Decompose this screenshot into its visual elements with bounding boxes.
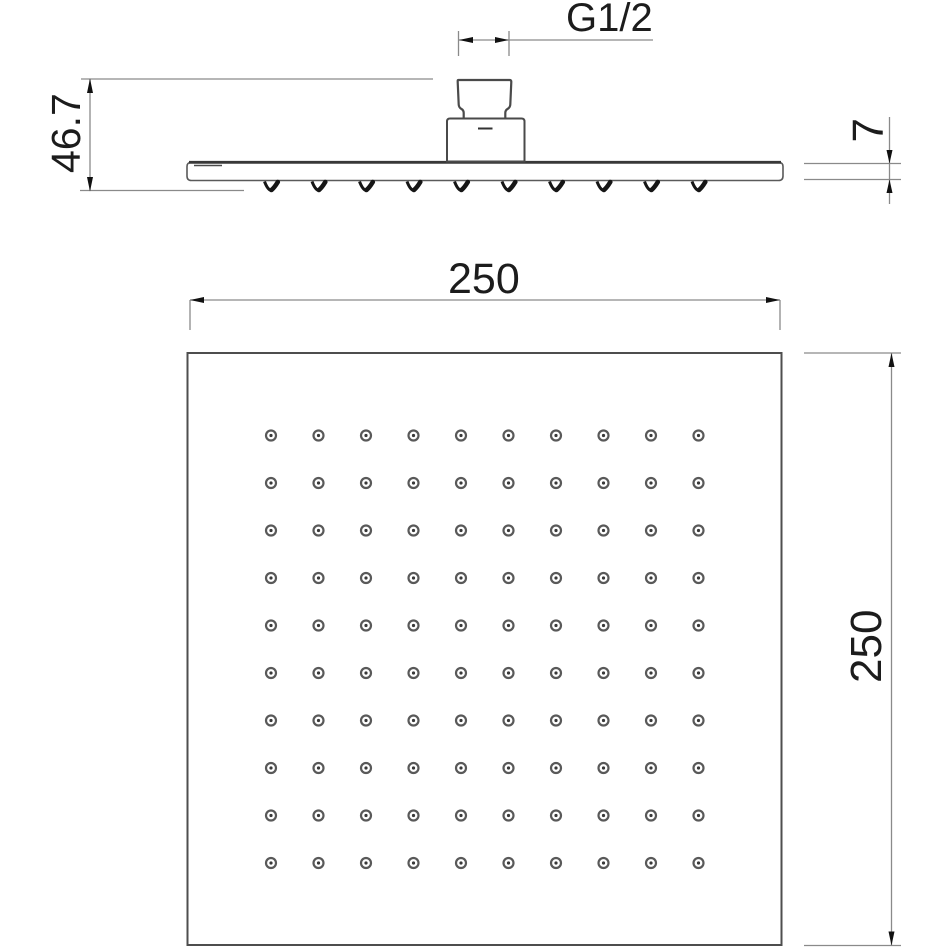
svg-text:250: 250	[842, 610, 891, 683]
svg-text:7: 7	[844, 118, 893, 142]
svg-text:46.7: 46.7	[43, 93, 89, 173]
svg-text:G1/2: G1/2	[566, 0, 653, 40]
svg-text:250: 250	[448, 255, 520, 303]
